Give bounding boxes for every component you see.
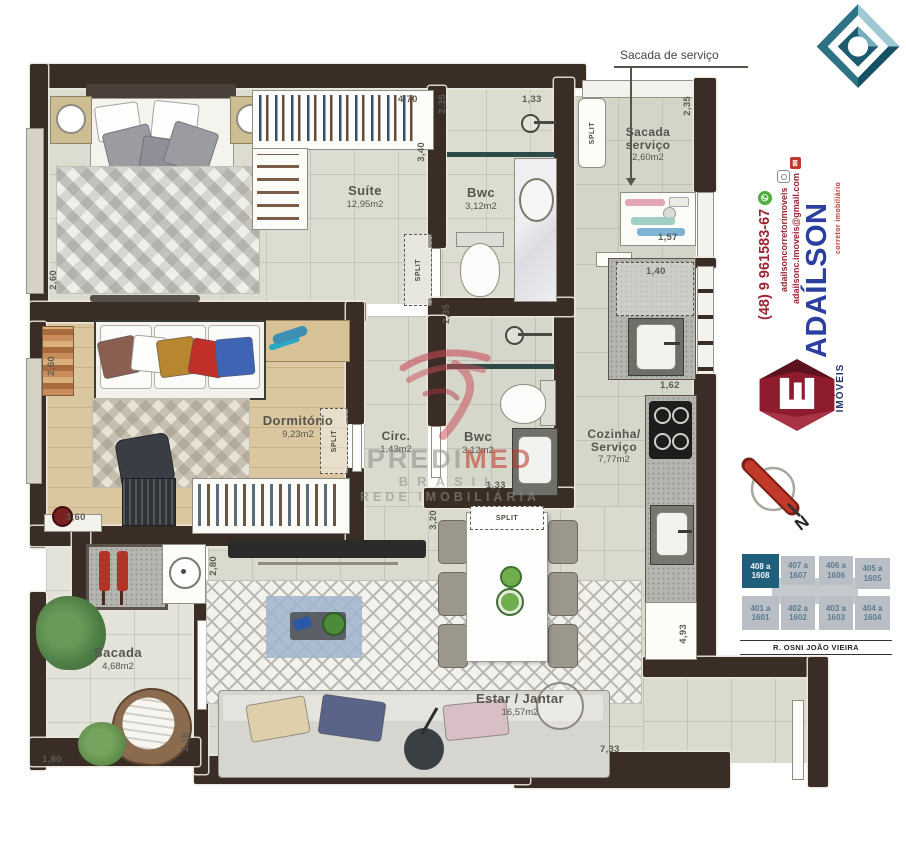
laundry-item-white: [669, 197, 689, 207]
kitchen-cabinet: [645, 602, 697, 660]
wall-entry-right: [808, 657, 828, 787]
dim-closet-top: 4,70: [398, 94, 418, 105]
compass-north-label: N: [791, 512, 812, 535]
kitchen-sink-1-basin: [636, 324, 676, 370]
dim-dorm-bottom: 3,60: [66, 512, 86, 523]
callout-leader-line: [630, 67, 632, 179]
dim-sacada-bottom: 1,80: [42, 754, 62, 765]
toilet1-bowl: [460, 243, 500, 297]
dining-chair-6: [548, 624, 578, 668]
skewer-2: [117, 551, 128, 591]
dining-chair-3: [438, 624, 468, 668]
dining-chair-1: [438, 520, 468, 564]
dorm-door: [352, 424, 362, 472]
adailson-logo-icon: [755, 356, 839, 434]
entry-door: [792, 700, 804, 780]
dim-kitchen-right: 4,93: [678, 624, 689, 644]
closet-hangers: [259, 95, 415, 141]
bwc2-door: [431, 426, 441, 478]
toilet2-bowl: [500, 384, 546, 424]
wall-entry-top: [643, 657, 827, 677]
sacada-servico-window: [582, 80, 696, 98]
brand-block: IMÓVEIS (48) 9 961583-67 ✆ adailsoncorre…: [753, 178, 847, 470]
suite-tv: [90, 295, 200, 302]
dining-chair-4: [548, 520, 578, 564]
lamp-left: [56, 104, 86, 134]
wall-suite-dorm: [30, 302, 366, 322]
table-plate-2: [496, 588, 524, 616]
label-sacada-servico: Sacada serviço 2,60m2: [600, 126, 696, 163]
entry-floor: [643, 677, 811, 763]
dim-living-bottom: 7,33: [600, 744, 620, 755]
suite-bwc1-door: [431, 248, 441, 302]
unit-cell-406: 406 a1606: [819, 556, 853, 585]
kitchen-faucet-1: [664, 342, 680, 345]
shower-arm-1: [534, 121, 556, 124]
bwc1-shower-divider: [447, 152, 555, 157]
shower-head-2-icon: [505, 326, 524, 345]
skewer-handle-2: [120, 591, 123, 605]
instagram-icon: [777, 170, 790, 183]
bbq-drain: [181, 569, 186, 574]
split-label: SPLIT: [496, 515, 518, 522]
bwc2-shower-divider: [447, 364, 555, 369]
suite-closet-side: [252, 148, 308, 230]
churrasqueira: [86, 544, 168, 610]
suite-window: [26, 128, 44, 294]
skewer-handle-1: [102, 591, 105, 605]
circ-floor: [364, 316, 428, 508]
tv-shelf: [258, 562, 398, 565]
unit-cell-408: 408 a1608: [742, 554, 779, 588]
round-chair-cushion: [119, 694, 178, 753]
bbq-sink-box: [162, 544, 206, 604]
whatsapp-icon: ✆: [758, 191, 772, 205]
closet-side-hangers: [257, 154, 299, 220]
label-bwc2: Bwc 3,12m2: [442, 430, 514, 456]
label-bwc1: Bwc 3,12m2: [445, 186, 517, 212]
email-address: adailsonc.imoveis@gmail.com: [791, 173, 801, 304]
dorm-pillow-blue: [214, 336, 255, 377]
contact-phone-row: (48) 9 961583-67 ✆: [757, 191, 773, 320]
dim-dorm-left: 2,60: [46, 356, 57, 376]
unit-cell-404: 404 a1604: [855, 596, 890, 630]
compass-icon: N: [738, 452, 848, 552]
floorplan-page: SPLIT: [0, 0, 906, 853]
contact-instagram-row: adailsoncorretorimoveis: [777, 170, 790, 292]
split-estar: SPLIT: [470, 506, 544, 530]
burner-2: [672, 407, 689, 424]
shower-arm-2: [518, 333, 552, 336]
table-plate-1: [500, 566, 522, 588]
living-tv: [228, 540, 426, 558]
label-suite: Suíte 12,95m2: [310, 184, 420, 210]
instagram-handle: adailsoncorretorimoveis: [779, 187, 789, 292]
wall-right-lower: [694, 374, 716, 657]
split-suite: SPLIT: [404, 234, 432, 306]
label-sacada: Sacada 4,68m2: [70, 646, 166, 672]
unit-grid: 408 a1608 407 a1607 406 a1606 405 a1605 …: [742, 552, 892, 638]
brand-name: ADAÍLSON: [801, 203, 834, 358]
diamond-logo-icon: [812, 2, 904, 90]
street-label: R. OSNI JOÃO VIEIRA: [740, 640, 892, 655]
shower-head-1-icon: [521, 114, 540, 133]
split-label: SPLIT: [589, 122, 596, 144]
unit-cell-407: 407 a1607: [781, 556, 815, 585]
contact-email-row: adailsonc.imoveis@gmail.com ✉: [790, 157, 801, 304]
dorm-desk: [122, 478, 176, 526]
kitchen-faucet-2: [678, 530, 692, 533]
dim-bwc1-top: 1,33: [522, 94, 542, 105]
unit-cell-402: 402 a1602: [781, 596, 815, 630]
split-label: SPLIT: [415, 259, 422, 281]
unit-cell-401: 401 a1601: [742, 596, 779, 630]
dorm-window: [26, 358, 42, 484]
dining-chair-2: [438, 572, 468, 616]
dim-sacada-servico-right: 2,35: [682, 96, 693, 116]
bwc2-basin: [518, 436, 552, 484]
brand-imoveis: IMÓVEIS: [835, 356, 846, 420]
dim-bwc2-bottom: 1,33: [486, 480, 506, 491]
dorm-closet-hangers: [198, 484, 342, 526]
kitchen-sink-2-basin: [656, 512, 688, 556]
dim-sacada-right: 2,18: [180, 732, 191, 752]
callout-sacada-servico: Sacada de serviço: [620, 48, 760, 62]
dim-counter: 1,62: [660, 380, 680, 391]
dorm-closet: [192, 478, 350, 534]
label-estar: Estar / Jantar 16,57m2: [440, 692, 600, 718]
brand-subtitle: corretor imobiliário: [835, 182, 842, 254]
bwc1-sink: [519, 178, 554, 222]
dim-wash-box: 1,40: [646, 266, 666, 277]
laundry-item-pink: [625, 199, 665, 206]
dim-living-left: 3,20: [428, 510, 439, 530]
phone-number: (48) 9 961583-67: [757, 209, 773, 320]
bush-plant: [78, 722, 126, 766]
dim-bwc2-left: 2,35: [441, 304, 452, 324]
burner-4: [672, 433, 689, 450]
skewer-1: [99, 551, 110, 591]
dining-chair-5: [548, 572, 578, 616]
floor-lamp-dark: [404, 728, 444, 770]
kitchen-windows: [697, 266, 714, 376]
callout-arrow-icon: [626, 178, 636, 186]
right-window-1: [697, 192, 714, 264]
wall-right-top: [694, 78, 716, 192]
unit-cell-405: 405 a1605: [855, 558, 890, 589]
unit-cell-403: 403 a1603: [819, 596, 853, 630]
suite-rug: [56, 166, 260, 294]
coffee-plant: [322, 612, 346, 636]
dim-bwc1-left: 2,35: [437, 94, 448, 114]
burner-1: [654, 407, 671, 424]
dim-suite-left: 2,60: [48, 270, 59, 290]
wall-bwc2-left: [428, 316, 446, 426]
label-cozinha: Cozinha/ Serviço 7,77m2: [566, 428, 662, 465]
email-icon: ✉: [790, 157, 801, 169]
callout-underline: [614, 66, 748, 68]
laundry-item-mint: [631, 217, 675, 225]
dim-laundry: 1,57: [658, 232, 678, 243]
dim-suite-right: 3,40: [416, 142, 427, 162]
dim-living-wall: 2,80: [208, 556, 219, 576]
label-circ: Circ. 1,43m2: [362, 430, 430, 455]
label-dormitorio: Dormitório 9,23m2: [246, 414, 350, 440]
